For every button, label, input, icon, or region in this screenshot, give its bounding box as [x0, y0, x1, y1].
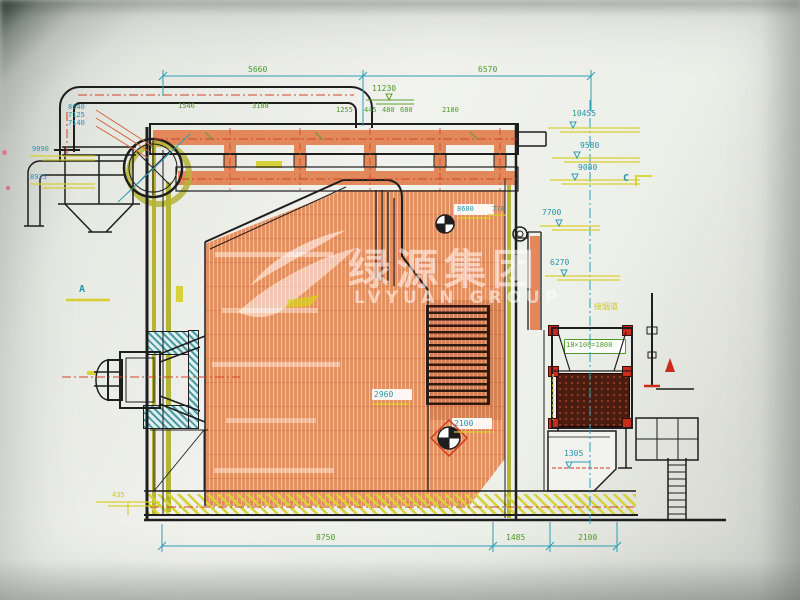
photo-edge-shadow-bottom [0, 560, 800, 600]
boiler-drawing-photo: 5660 6570 11230 1546 3188 1255 445 480 6… [0, 0, 800, 600]
dim-small: 1255 [336, 107, 353, 114]
level-left-1: 9090 [32, 146, 49, 153]
tube-bundle-note: 18×100=1800 [566, 342, 612, 349]
level-total: 11230 [372, 85, 396, 93]
inner-label-2100: 2100 [454, 420, 473, 428]
bottom-dim-2: 1485 [506, 534, 525, 542]
dim-span-right: 6570 [478, 66, 497, 74]
flue-note: 接烟道 [594, 303, 618, 311]
inner-label-770: 770 [492, 206, 505, 213]
photo-corner-shadow-topleft [0, 0, 170, 130]
level-right-2: 9580 [580, 142, 599, 150]
section-mark-c: C [623, 174, 629, 184]
green-marks [205, 94, 580, 276]
inner-label-8600: 8600 [457, 206, 474, 213]
level-right-1: 10455 [572, 110, 596, 118]
section-mark-a: A [79, 285, 85, 295]
dim-small: 3188 [252, 103, 269, 110]
target-symbol-lower [438, 427, 460, 449]
photo-edge-shadow-right [760, 0, 800, 600]
dim-span-left: 5660 [248, 66, 267, 74]
level-right-4: 7700 [542, 209, 561, 217]
inner-label-1305: 1305 [564, 450, 583, 458]
inner-label-2960: 2960 [374, 391, 393, 399]
bottom-dim-1: 8750 [316, 534, 335, 542]
dim-small: 680 [400, 107, 413, 114]
level-left-2: 8925 [30, 174, 47, 181]
bottom-dim-3: 2100 [578, 534, 597, 542]
black-linework [24, 87, 726, 521]
section-triangle-marker [665, 358, 675, 372]
dim-small: 445 [364, 107, 377, 114]
dim-small: 480 [382, 107, 395, 114]
level-base: 435 [112, 492, 125, 499]
level-right-5: 6270 [550, 259, 569, 267]
target-symbol-upper [436, 215, 454, 233]
photo-edge-shadow-top [0, 0, 800, 16]
dim-small: 1546 [178, 103, 195, 110]
level-right-3: 9080 [578, 164, 597, 172]
dim-small: 2180 [442, 107, 459, 114]
